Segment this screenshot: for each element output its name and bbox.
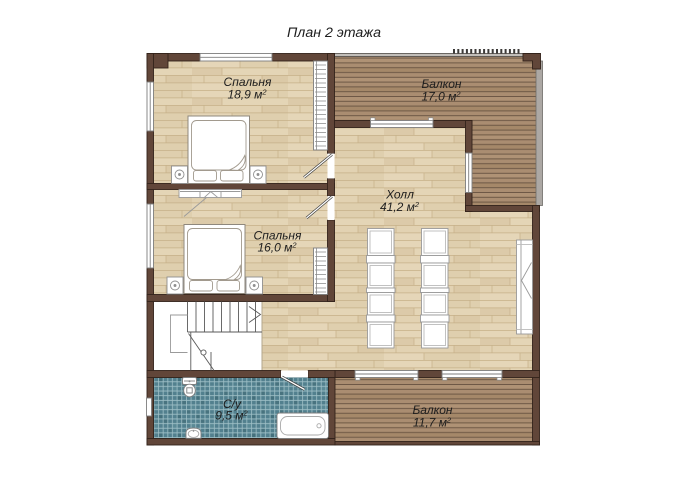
svg-text:17,0 м2: 17,0 м2 — [421, 90, 461, 104]
svg-text:18,9 м2: 18,9 м2 — [227, 88, 267, 102]
svg-text:11,7 м2: 11,7 м2 — [413, 416, 452, 430]
svg-text:41,2 м2: 41,2 м2 — [380, 200, 420, 214]
svg-text:16,0 м2: 16,0 м2 — [257, 241, 297, 255]
svg-text:План 2 этажа: План 2 этажа — [287, 25, 381, 41]
